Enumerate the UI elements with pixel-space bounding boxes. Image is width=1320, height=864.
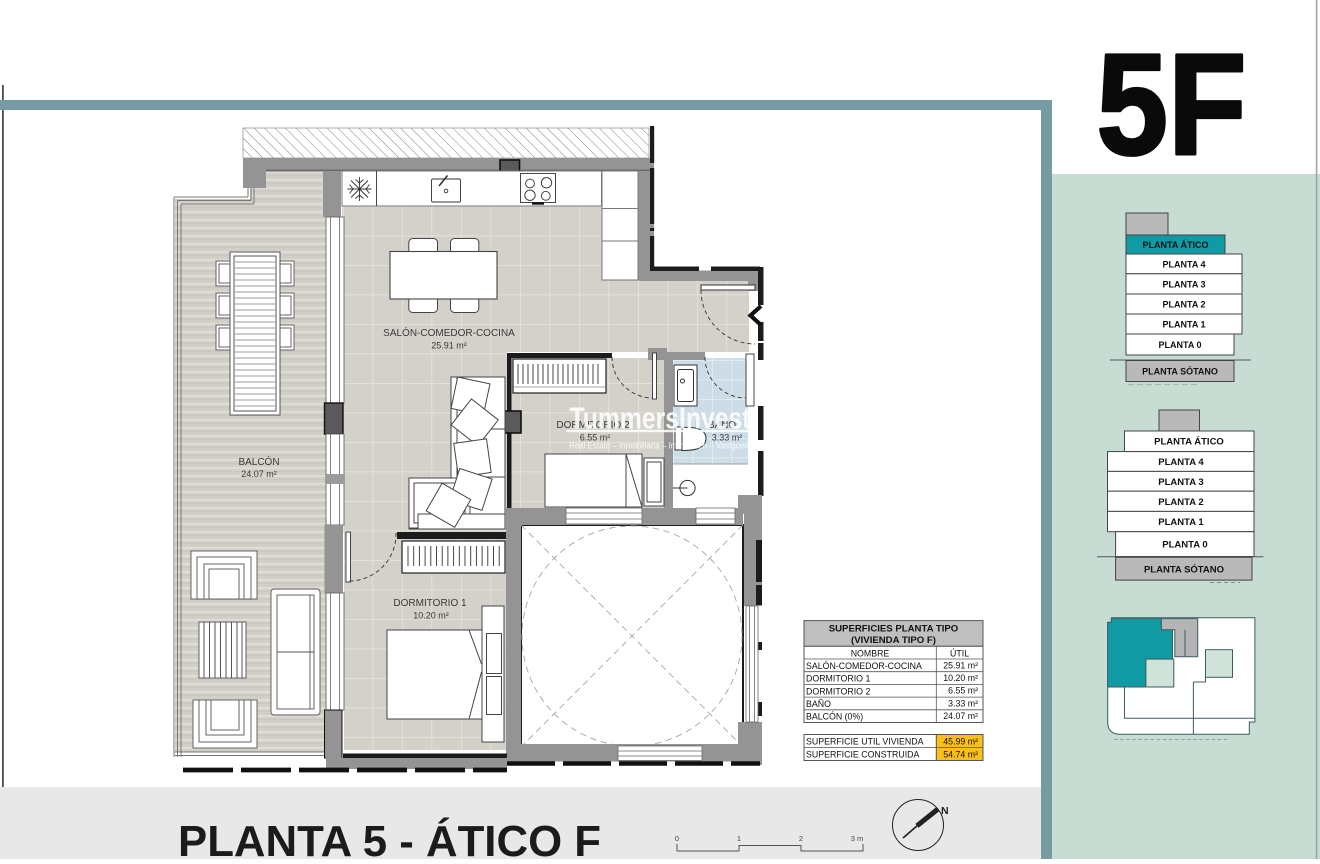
- svg-text:24.07 m²: 24.07 m²: [241, 469, 277, 479]
- svg-text:PLANTA 5 - ÁTICO F: PLANTA 5 - ÁTICO F: [178, 816, 601, 859]
- svg-text:54.74 m²: 54.74 m²: [943, 750, 978, 760]
- svg-text:24.07 m²: 24.07 m²: [943, 711, 978, 721]
- svg-text:Real Estate – Inmobiliaria – I: Real Estate – Inmobiliaria – Immobilien …: [569, 441, 749, 451]
- svg-text:SUPERFICIES PLANTA TIPO: SUPERFICIES PLANTA TIPO: [829, 624, 959, 635]
- svg-text:PLANTA SÓTANO: PLANTA SÓTANO: [1142, 366, 1218, 377]
- svg-text:DORMITORIO 2: DORMITORIO 2: [806, 686, 870, 696]
- svg-text:PLANTA 3: PLANTA 3: [1162, 280, 1205, 290]
- svg-text:PLANTA 0: PLANTA 0: [1162, 540, 1207, 551]
- svg-text:ÚTIL: ÚTIL: [950, 648, 969, 658]
- svg-text:SUPERFICIE CONSTRUIDA: SUPERFICIE CONSTRUIDA: [806, 750, 920, 760]
- svg-text:PLANTA 2: PLANTA 2: [1162, 300, 1205, 310]
- svg-text:SALÓN-COMEDOR-COCINA: SALÓN-COMEDOR-COCINA: [383, 326, 515, 339]
- svg-text:10.20 m²: 10.20 m²: [413, 611, 449, 621]
- svg-text:5F: 5F: [1097, 24, 1247, 185]
- svg-text:DORMITORIO 1: DORMITORIO 1: [393, 598, 467, 609]
- svg-text:NOMBRE: NOMBRE: [851, 648, 890, 658]
- svg-text:(VIVIENDA TIPO F): (VIVIENDA TIPO F): [851, 635, 936, 646]
- svg-text:3 m: 3 m: [851, 834, 864, 843]
- svg-text:45.99 m²: 45.99 m²: [943, 737, 978, 747]
- svg-text:25.91 m²: 25.91 m²: [431, 341, 467, 351]
- svg-text:10.20 m²: 10.20 m²: [943, 673, 978, 683]
- svg-text:PLANTA 3: PLANTA 3: [1158, 477, 1203, 488]
- svg-text:SALÓN-COMEDOR-COCINA: SALÓN-COMEDOR-COCINA: [806, 661, 922, 671]
- svg-text:3.33 m²: 3.33 m²: [948, 698, 978, 708]
- svg-text:BALCÓN (0%): BALCÓN (0%): [806, 712, 863, 722]
- svg-text:PLANTA SÓTANO: PLANTA SÓTANO: [1144, 564, 1224, 576]
- svg-text:SUPERFICIE UTIL VIVIENDA: SUPERFICIE UTIL VIVIENDA: [806, 737, 924, 747]
- svg-text:BAÑO: BAÑO: [806, 699, 831, 709]
- svg-text:PLANTA 4: PLANTA 4: [1162, 260, 1205, 270]
- svg-text:PLANTA 4: PLANTA 4: [1158, 457, 1204, 468]
- svg-text:0: 0: [675, 834, 679, 843]
- svg-text:25.91 m²: 25.91 m²: [943, 660, 978, 670]
- svg-text:1: 1: [737, 834, 741, 843]
- svg-text:PLANTA 1: PLANTA 1: [1162, 320, 1205, 330]
- svg-text:PLANTA 2: PLANTA 2: [1158, 497, 1203, 508]
- svg-text:2: 2: [799, 834, 803, 843]
- svg-text:PLANTA ÁTICO: PLANTA ÁTICO: [1154, 437, 1224, 448]
- svg-text:PLANTA ÁTICO: PLANTA ÁTICO: [1143, 240, 1209, 250]
- svg-text:BALCÓN: BALCÓN: [238, 455, 279, 468]
- svg-text:PLANTA 0: PLANTA 0: [1158, 340, 1201, 350]
- svg-text:6.55 m²: 6.55 m²: [948, 686, 978, 696]
- svg-text:N: N: [941, 805, 949, 817]
- svg-text:PLANTA 1: PLANTA 1: [1158, 517, 1204, 528]
- svg-text:DORMITORIO 1: DORMITORIO 1: [806, 674, 870, 684]
